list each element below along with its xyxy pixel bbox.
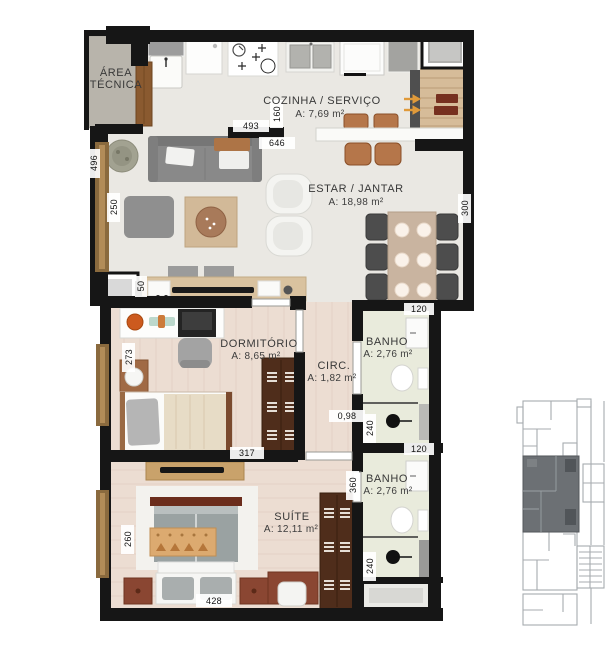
floor-plan-canvas: 493 160 646 496 250 300 50 273 120 0,98 …	[0, 0, 613, 650]
floor-plan: 493 160 646 496 250 300 50 273 120 0,98 …	[0, 0, 613, 650]
shaft-enclosure	[363, 583, 429, 608]
label-area-tecnica-2: TÉCNICA	[90, 78, 143, 91]
label-circ: CIRC.	[318, 360, 351, 372]
label-dormitorio: DORMITÓRIO	[220, 337, 298, 350]
label-area-tecnica-1: ÁREA	[100, 66, 132, 79]
dim-250: 250	[109, 199, 119, 215]
dining-set	[366, 212, 458, 304]
area-banho-superior: A: 2,76 m²	[363, 349, 412, 360]
dim-317: 317	[239, 448, 255, 458]
window-dormitorio	[96, 344, 109, 426]
pouf	[124, 196, 174, 238]
toilet-tank	[418, 510, 428, 531]
dim-646: 646	[269, 138, 285, 148]
area-banho-inferior: A: 2,76 m²	[363, 486, 412, 497]
dim-160: 160	[272, 106, 282, 122]
desk-chair	[178, 338, 212, 368]
suite-tv-console	[146, 462, 244, 480]
dim-240-sup: 240	[365, 420, 375, 436]
kitchen-appliance	[388, 41, 418, 72]
label-estar: ESTAR / JANTAR	[308, 183, 403, 195]
dim-120-sup: 120	[411, 304, 427, 314]
window-suite	[96, 490, 109, 578]
toilet	[391, 365, 413, 391]
area-cozinha: A: 7,69 m²	[295, 109, 344, 120]
nightstand	[124, 578, 152, 604]
door-suite	[306, 452, 352, 460]
cooktop	[228, 40, 278, 76]
toilet-tank	[418, 368, 428, 389]
dim-240-inf: 240	[365, 558, 375, 574]
label-banho-inferior: BANHO	[366, 473, 408, 485]
area-dormitorio: A: 8,65 m²	[231, 351, 280, 362]
dim-260: 260	[123, 531, 133, 547]
area-estar: A: 18,98 m²	[329, 197, 384, 208]
sink-vanity	[406, 318, 428, 348]
suite-desk	[268, 572, 318, 606]
label-suite: SUÍTE	[274, 510, 309, 523]
armchair	[266, 174, 312, 214]
label-cozinha: COZINHA / SERVIÇO	[263, 95, 381, 107]
patterned-throw	[150, 528, 216, 556]
bar-stool	[374, 114, 398, 129]
bar-stool	[344, 114, 368, 129]
washing-machine	[186, 40, 222, 74]
sofa	[148, 136, 262, 182]
desk	[120, 308, 224, 338]
laundry-sink	[150, 56, 182, 88]
dim-360: 360	[348, 477, 358, 493]
double-sink	[286, 42, 334, 72]
bar-stool	[345, 143, 371, 165]
key-plan-highlighted-unit	[523, 456, 579, 532]
bed-single	[120, 392, 232, 452]
plant	[106, 140, 138, 172]
toilet	[391, 507, 413, 533]
bed-double	[150, 497, 242, 573]
label-banho-superior: BANHO	[366, 336, 408, 348]
wardrobe	[320, 493, 354, 609]
coffee-table	[185, 197, 237, 247]
windows	[95, 142, 109, 578]
dim-300: 300	[460, 200, 470, 216]
dim-098: 0,98	[338, 411, 357, 421]
tall-cabinet	[136, 62, 152, 126]
dim-428: 428	[206, 596, 222, 606]
armchair	[266, 216, 312, 256]
bar-stool	[375, 143, 401, 165]
nightstand	[240, 578, 268, 604]
area-circ: A: 1,82 m²	[307, 373, 356, 384]
door-banho-superior	[353, 342, 361, 394]
dim-273: 273	[124, 349, 134, 365]
area-suite: A: 12,11 m²	[264, 524, 319, 535]
dim-493: 493	[243, 121, 259, 131]
dim-120-inf: 120	[411, 444, 427, 454]
dim-50: 50	[136, 281, 146, 292]
refrigerator	[340, 40, 384, 76]
dim-496: 496	[89, 155, 99, 171]
door-dormitorio	[252, 299, 290, 306]
